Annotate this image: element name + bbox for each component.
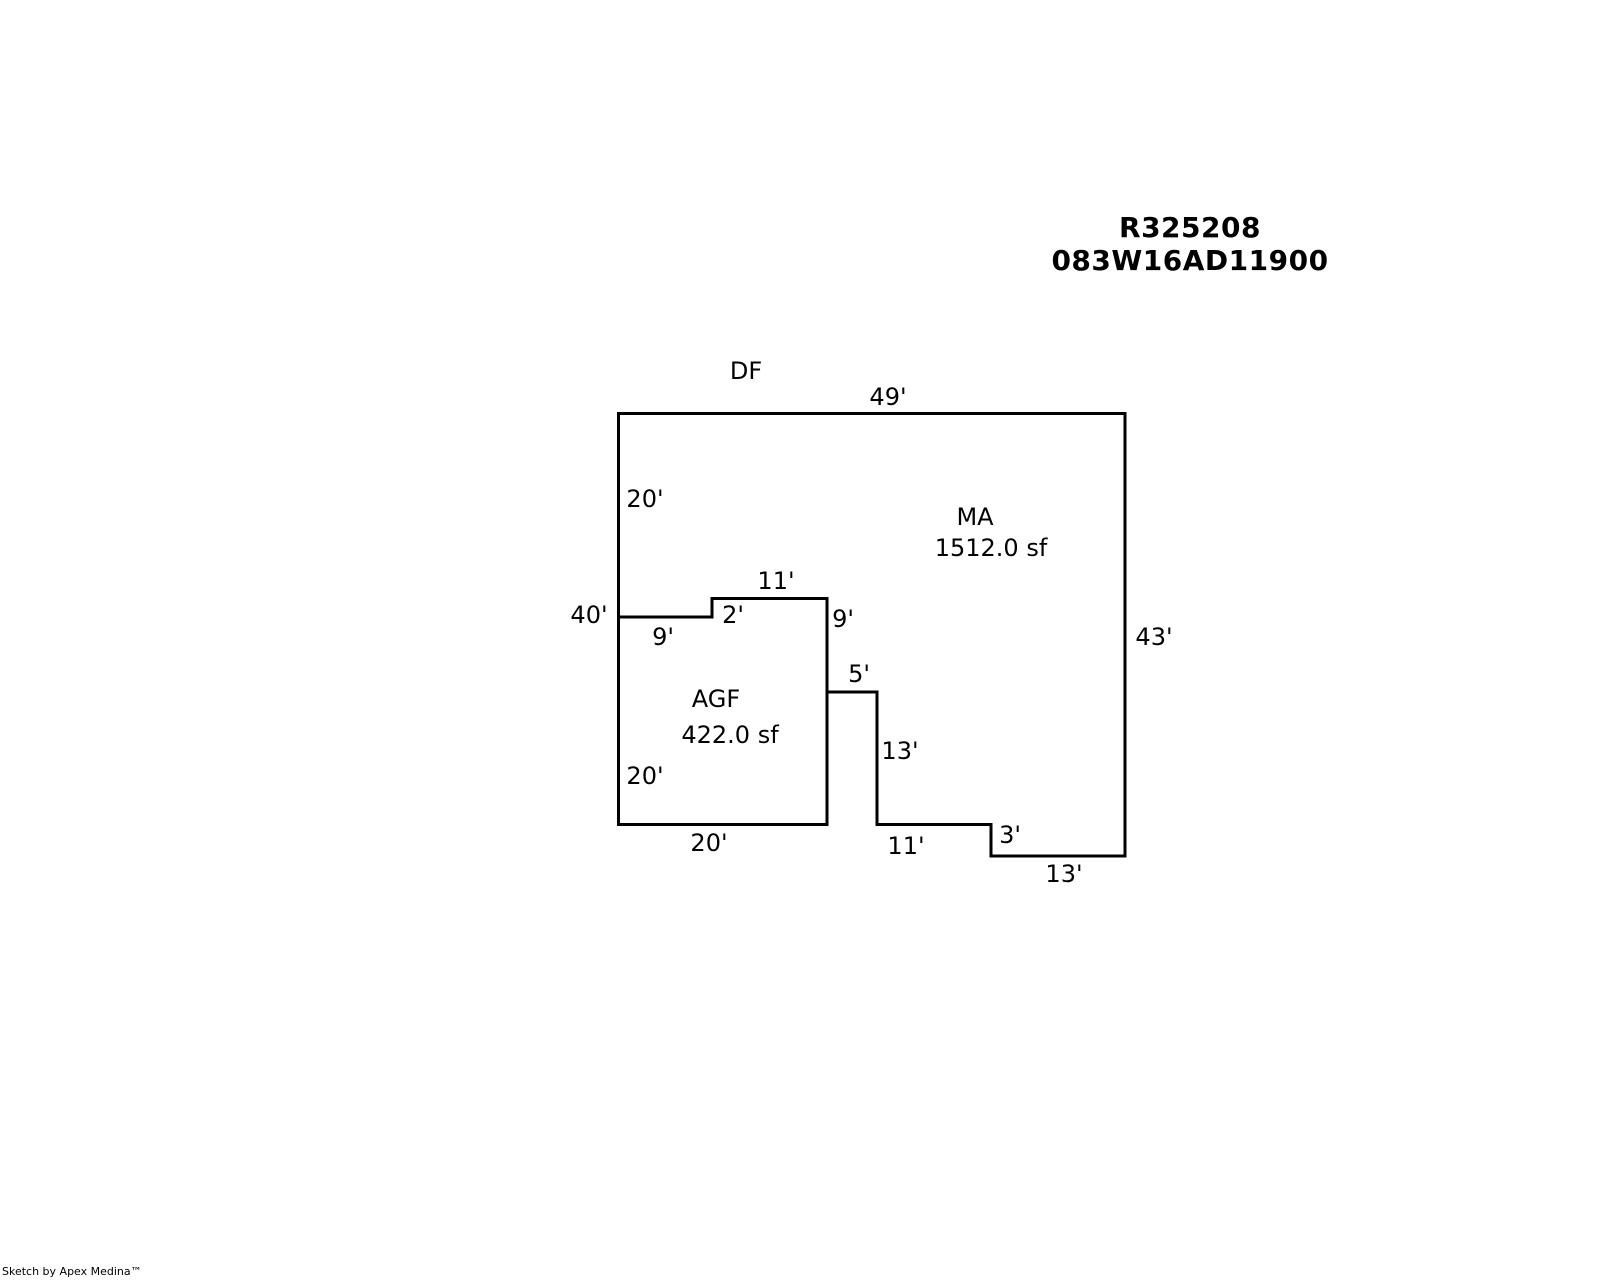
dim-right-43: 43' xyxy=(1135,625,1172,649)
dim-top-49: 49' xyxy=(869,385,906,409)
ma-code-label: MA xyxy=(956,505,993,529)
df-label: DF xyxy=(730,359,762,383)
agf-code-label: AGF xyxy=(692,687,740,711)
dim-left-upper-20: 20' xyxy=(626,487,663,511)
dim-notch-right-9: 9' xyxy=(832,607,854,631)
dim-notch-bottom-9: 9' xyxy=(652,625,674,649)
sketch-page: R325208 083W16AD11900 DF MA 1512.0 sf AG… xyxy=(0,0,1600,1280)
agf-area-label: 422.0 sf xyxy=(681,723,778,747)
dim-notch-top-11: 11' xyxy=(757,569,794,593)
footer-credit: Sketch by Apex Medina™ xyxy=(2,1265,142,1278)
dim-notch-step-2: 2' xyxy=(722,603,744,627)
dim-mid-right-13: 13' xyxy=(881,739,918,763)
dim-left-total-40: 40' xyxy=(570,603,607,627)
dim-bottom-right-13: 13' xyxy=(1045,862,1082,886)
dim-agf-left-20: 20' xyxy=(626,764,663,788)
ma-area-label: 1512.0 sf xyxy=(935,536,1048,560)
floorplan-outline xyxy=(0,0,1600,1280)
dim-bottom-left-11: 11' xyxy=(887,834,924,858)
ma-polygon xyxy=(619,414,1126,857)
dim-bottom-step-3: 3' xyxy=(999,823,1021,847)
dim-agf-bottom-20: 20' xyxy=(690,831,727,855)
dim-step-right-5: 5' xyxy=(848,662,870,686)
